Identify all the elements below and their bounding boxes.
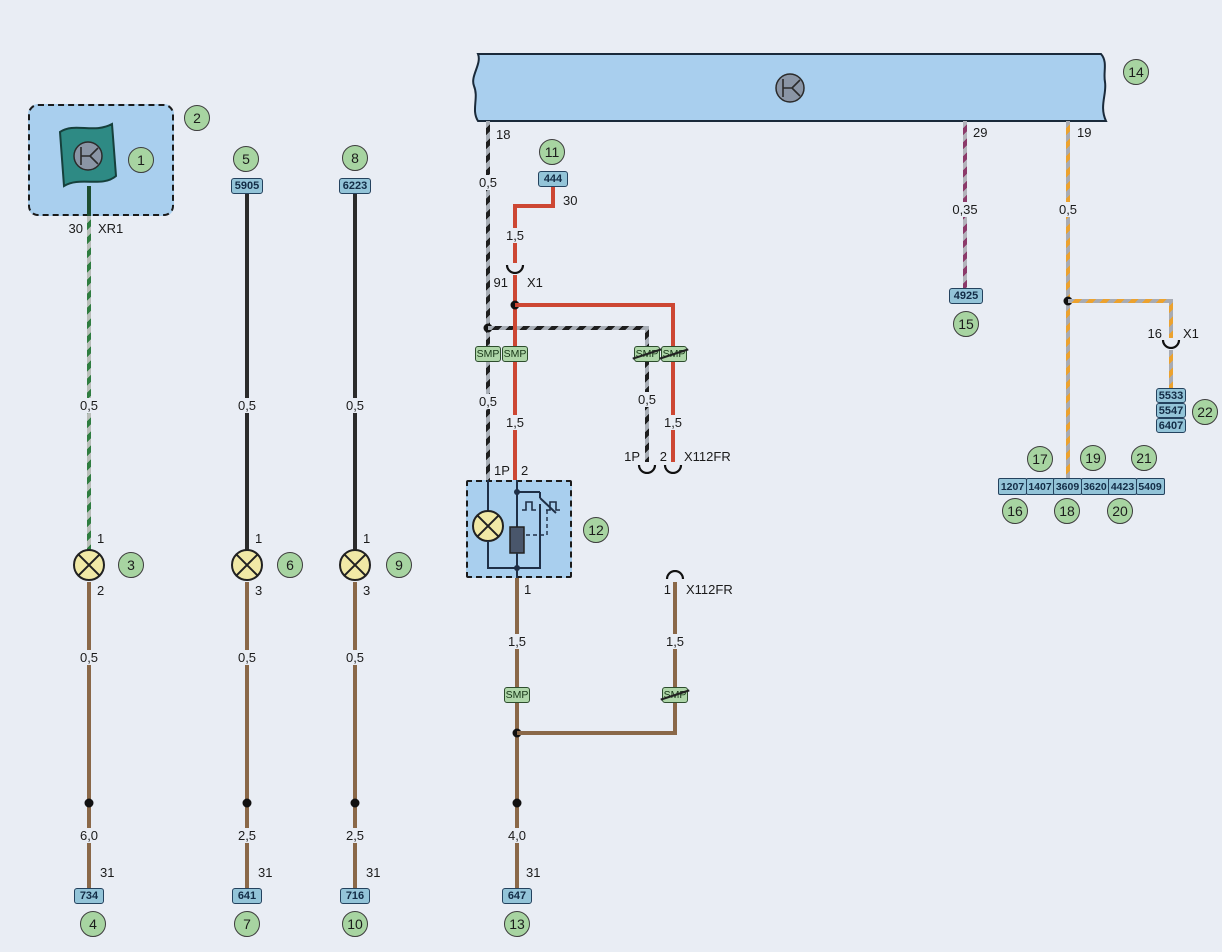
pin-label: 1 [255, 532, 262, 545]
connector-box-4925: 4925 [949, 288, 983, 304]
smp-splice-struck: SMP [661, 346, 687, 362]
callout-22: 22 [1192, 399, 1218, 425]
wiring-diagram-page: 14 1 2 30 XR1 0,5 1 3 2 0,5 6,0 31 734 4… [0, 0, 1222, 952]
pin-label: 1 [97, 532, 104, 545]
wire-size-label: 1,5 [661, 415, 685, 430]
connector-arc-icon [505, 263, 525, 274]
callout-3: 3 [118, 552, 144, 578]
callout-18: 18 [1054, 498, 1080, 524]
strip-cell-3620: 3620 [1081, 478, 1110, 495]
connector-arc-icon [637, 463, 657, 474]
wire-segment-orange-grey [1068, 299, 1173, 303]
callout-19: 19 [1080, 445, 1106, 471]
bus-bar [455, 48, 1115, 126]
strip-cell-5409: 5409 [1136, 478, 1165, 495]
wire-size-label: 4,0 [505, 828, 529, 843]
wire-segment [87, 186, 91, 216]
wire-size-label: 0,5 [1056, 202, 1080, 217]
wire-size-label: 2,5 [343, 828, 367, 843]
callout-21: 21 [1131, 445, 1157, 471]
smp-splice: SMP [504, 687, 530, 703]
callout-8: 8 [342, 145, 368, 171]
callout-7: 7 [234, 911, 260, 937]
callout-17: 17 [1027, 446, 1053, 472]
callout-16: 16 [1002, 498, 1028, 524]
connector-name-label: X1 [527, 276, 543, 289]
pin-label: 1 [363, 532, 370, 545]
pin-label: 3 [363, 584, 370, 597]
smp-splice: SMP [502, 346, 528, 362]
wire-size-label: 0,5 [343, 398, 367, 413]
wire-segment-black [245, 194, 249, 550]
wire-size-label: 2,5 [235, 828, 259, 843]
wire-size-label: 1,5 [503, 228, 527, 243]
component-icon [74, 142, 102, 170]
wire-size-label: 1,5 [505, 634, 529, 649]
pin-label: 2 [660, 450, 667, 463]
smp-splice: SMP [475, 346, 501, 362]
wire-size-label: 1,5 [663, 634, 687, 649]
connector-box-641: 641 [232, 888, 262, 904]
callout-4: 4 [80, 911, 106, 937]
callout-2: 2 [184, 105, 210, 131]
callout-5: 5 [233, 146, 259, 172]
wire-segment-red [515, 303, 675, 307]
connector-name-label: X112FR [684, 450, 731, 463]
wire-size-label: 0,5 [343, 650, 367, 665]
strip-cell-1207: 1207 [998, 478, 1027, 495]
connector-name-label: X112FR [686, 583, 733, 596]
wire-segment-red [671, 303, 675, 462]
wire-segment-brown [517, 731, 677, 735]
wire-size-label: 0,35 [949, 202, 980, 217]
callout-15: 15 [953, 311, 979, 337]
wire-size-label: 0,5 [77, 650, 101, 665]
callout-11: 11 [539, 139, 565, 165]
smp-splice-struck: SMP [662, 687, 688, 703]
connector-box-6223: 6223 [339, 178, 371, 194]
connector-box-5547: 5547 [1156, 403, 1186, 418]
pin-label: 31 [258, 866, 272, 879]
connector-box-5533: 5533 [1156, 388, 1186, 403]
wire-size-label: 0,5 [476, 394, 500, 409]
smp-splice-struck: SMP [634, 346, 660, 362]
pin-label: 19 [1077, 126, 1091, 139]
connector-arc-icon [1161, 338, 1181, 349]
wire-size-label: 0,5 [235, 650, 259, 665]
wire-size-label: 0,5 [635, 392, 659, 407]
callout-13: 13 [504, 911, 530, 937]
wire-size-label: 0,5 [235, 398, 259, 413]
pin-label: 30 [563, 194, 577, 207]
pin-label: 31 [366, 866, 380, 879]
wire-size-label: 6,0 [77, 828, 101, 843]
wire-segment-orange-grey [1169, 350, 1173, 390]
wire-size-label: 0,5 [476, 175, 500, 190]
wire-segment-orange-grey [1169, 299, 1173, 338]
pin-label: 1P [624, 450, 640, 463]
connector-name-label: X1 [1183, 327, 1199, 340]
connector-arc-icon [663, 463, 683, 474]
relay-internals [466, 480, 572, 578]
pin-label: 1 [664, 583, 671, 596]
strip-cell-3609: 3609 [1053, 478, 1082, 495]
wire-segment-green-grey [87, 216, 91, 550]
callout-9: 9 [386, 552, 412, 578]
connector-box-6407: 6407 [1156, 418, 1186, 433]
pin-label: 3 [255, 584, 262, 597]
strip-cell-1407: 1407 [1026, 478, 1055, 495]
lamp-icon [338, 548, 372, 582]
pin-label: 1P [494, 464, 510, 477]
lamp-icon [72, 548, 106, 582]
pin-label: 2 [97, 584, 104, 597]
callout-6: 6 [277, 552, 303, 578]
callout-10: 10 [342, 911, 368, 937]
pin-label: 30 [69, 222, 83, 235]
wire-segment-black [353, 194, 357, 550]
pin-label: 1 [524, 583, 531, 596]
connector-box-5905: 5905 [231, 178, 263, 194]
pin-label: 29 [973, 126, 987, 139]
callout-14: 14 [1123, 59, 1149, 85]
lamp-icon [230, 548, 264, 582]
connector-arc-icon [665, 570, 685, 581]
pin-label: 91 [494, 276, 508, 289]
pin-label: 16 [1148, 327, 1162, 340]
wire-name-label: XR1 [98, 222, 123, 235]
connector-box-716: 716 [340, 888, 370, 904]
pin-label: 31 [526, 866, 540, 879]
junction-dot [85, 799, 94, 808]
pin-label: 2 [521, 464, 528, 477]
strip-cell-4423: 4423 [1108, 478, 1137, 495]
pin-label: 18 [496, 128, 510, 141]
junction-dot [351, 799, 360, 808]
connector-strip: 1207 1407 3609 3620 4423 5409 [998, 478, 1163, 495]
wire-segment-red [513, 204, 555, 208]
connector-box-444: 444 [538, 171, 568, 187]
wire-size-label: 1,5 [503, 415, 527, 430]
junction-dot [513, 799, 522, 808]
junction-dot [243, 799, 252, 808]
callout-1: 1 [128, 147, 154, 173]
wire-size-label: 0,5 [77, 398, 101, 413]
callout-20: 20 [1107, 498, 1133, 524]
pin-label: 31 [100, 866, 114, 879]
callout-12: 12 [583, 517, 609, 543]
wire-segment-brown [673, 582, 677, 733]
connector-box-734: 734 [74, 888, 104, 904]
connector-box-647: 647 [502, 888, 532, 904]
component-icon [776, 74, 804, 102]
